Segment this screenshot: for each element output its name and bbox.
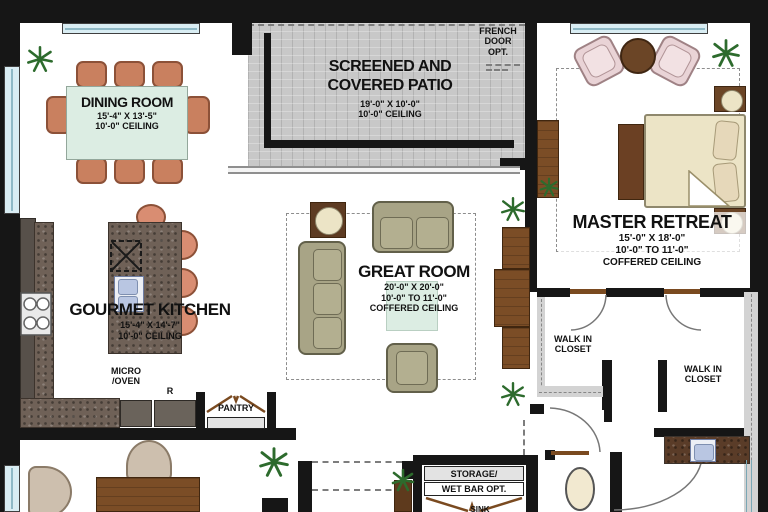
master-retreat-dims: 15'-0" X 18'-0" [558,233,746,245]
master-window-top [570,23,708,34]
wall-hall-west [298,461,312,512]
dining-chair [76,61,107,88]
great-room-ceiling2: COFFERED CEILING [336,303,492,314]
den-window-left [4,465,20,512]
closet-wall-v2 [658,360,667,412]
floor-plan: DINING ROOM 15'-4" X 13'-5" 10'-0" CEILI… [0,0,768,512]
french-door-line1: FRENCH [470,26,526,36]
pantry-wall-left [196,392,205,432]
chair-cushion [580,42,618,80]
french-door-line2: DOOR [470,36,526,46]
nightstand-lamp [721,90,743,112]
wall-top [0,0,768,23]
sink-label: SINK [456,505,504,512]
french-door-line3: OPT. [470,47,526,57]
great-room-title: GREAT ROOM [336,262,492,282]
nightstand [714,86,746,112]
den-corner-wall [262,498,288,512]
shower-glass [746,460,752,512]
bath-wall-stub1 [530,404,544,414]
great-room-dims: 20'-0" X 20'-0" [336,282,492,293]
dining-chair [152,61,183,88]
bed-foot-bench [618,124,644,200]
island-cooktop-icon [110,240,142,272]
refrigerator-label: R [162,386,178,396]
plant-icon [26,44,54,74]
pantry-shelf [207,417,265,429]
wall-dining-patio-stub [232,23,252,55]
dining-table: DINING ROOM 15'-4" X 13'-5" 10'-0" CEILI… [66,86,188,160]
bed-fold-icon [688,170,730,207]
walk-in-closet-2-label: WALK IN CLOSET [672,364,734,385]
closet-wall-b [606,288,664,297]
dining-room-label: DINING ROOM 15'-4" X 13'-5" 10'-0" CEILI… [67,94,187,132]
kitchen-ceiling: 10'-0" CEILING [48,331,252,342]
dining-room-title: DINING ROOM [67,94,187,111]
wall-storage-top [413,455,535,465]
patio-wall-south [264,140,514,148]
dining-window-left [4,66,20,214]
plant-icon [710,38,742,68]
loveseat [372,201,454,253]
patio-dims: 19'-0" X 10'-0" [300,99,480,110]
closet1-line2: CLOSET [542,344,604,354]
wall-kitchen-south [20,428,296,440]
dining-chair [76,157,107,184]
french-door-label: FRENCH DOOR OPT. [470,26,526,57]
closet2-door-arc [664,294,702,332]
plant-icon [500,196,526,222]
closet1-line1: WALK IN [542,334,604,344]
armchair-cushion [396,351,428,385]
great-room-label: GREAT ROOM 20'-0" X 20'-0" 10'-0" TO 11'… [336,262,492,314]
media-console [494,269,530,327]
plant-icon [500,380,526,408]
hall-boundary-line [523,420,525,455]
dining-chair [114,157,145,184]
french-door-dash [486,69,508,71]
plant-icon [539,176,559,198]
kitchen-counter-bottom [20,398,120,428]
master-retreat-title: MASTER RETREAT [558,212,746,233]
refrigerator-appliance [154,400,196,427]
master-round-table [620,38,656,74]
sink-basin [118,279,138,295]
micro-oven-line2: /OVEN [96,376,156,386]
great-room-side-table [310,202,346,238]
closet1-door-arc [570,294,608,332]
great-room-sliding-doors [228,166,520,174]
loveseat-cushion [416,217,449,249]
closet-gray-wall-bottom [537,386,603,397]
bath-wall-v2 [604,396,612,422]
pantry-wall-right [267,392,276,432]
storage-panel-2: WET BAR OPT. [424,482,524,496]
patio-title-1: SCREENED AND [300,58,480,77]
great-room-ceiling1: 10'-0" TO 11'-0" [336,293,492,304]
patio-ceiling: 10'-0" CEILING [300,109,480,120]
patio-label: SCREENED AND COVERED PATIO 19'-0" X 10'-… [300,58,480,120]
hall-door-arc [548,406,602,454]
media-console [502,327,530,369]
armchair [386,343,438,393]
micro-oven-appliance [120,400,152,427]
wall-storage-right [526,455,538,512]
hall-opening-line [312,489,402,491]
bed-pillow [712,120,740,161]
walk-in-closet-1-label: WALK IN CLOSET [542,334,604,355]
side-table-top [315,207,343,235]
patio-wall-west [264,33,271,145]
dining-chair [114,61,145,88]
micro-oven-line1: MICRO [96,366,156,376]
vanity-basin [694,444,714,461]
dining-chair [152,157,183,184]
plant-icon [258,446,290,478]
french-door-dash [486,64,520,66]
master-retreat-label: MASTER RETREAT 15'-0" X 18'-0" 10'-0" TO… [558,212,746,269]
storage-panel-1: STORAGE/ [424,466,524,481]
patio-title-2: COVERED PATIO [300,77,480,96]
hall-opening-line [312,461,402,463]
closet-wall-a [537,288,570,297]
master-retreat-ceiling1: 10'-0" TO 11'-0" [558,245,746,257]
sofa-cushion [313,317,342,349]
micro-oven-label: MICRO /OVEN [96,366,156,387]
master-retreat-ceiling2: COFFERED CEILING [558,257,746,269]
media-console [502,227,530,269]
dining-room-dims: 15'-4" X 13'-5" [67,111,187,122]
dining-room-ceiling: 10'-0" CEILING [67,121,187,132]
pantry-label: PANTRY [205,403,267,413]
chair-cushion [656,42,694,80]
closet2-line2: CLOSET [672,374,734,384]
desk [96,477,200,512]
dining-window-top [62,23,200,34]
toilet-icon [562,462,598,512]
vanity-sink [690,439,716,462]
plant-icon [391,468,415,492]
kitchen-dims: 15'-4" X 14'-7" [48,320,252,331]
kitchen-title: GOURMET KITCHEN [48,300,252,320]
closet2-line1: WALK IN [672,364,734,374]
loveseat-cushion [380,217,413,249]
kitchen-label: GOURMET KITCHEN 15'-4" X 14'-7" 10'-0" C… [48,300,252,341]
